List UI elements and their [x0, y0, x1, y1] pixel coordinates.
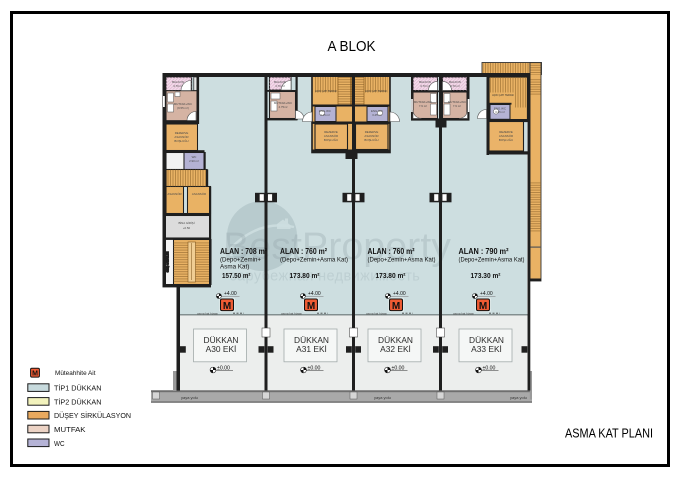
svg-text:AÇIK ÇATI TERASI: AÇIK ÇATI TERASI	[315, 90, 337, 93]
svg-text:7.9 m²: 7.9 m²	[419, 104, 427, 108]
svg-text:+4.00: +4.00	[393, 291, 406, 297]
svg-text:Asma Kat): Asma Kat)	[220, 264, 249, 271]
svg-text:MUTFAK: MUTFAK	[54, 425, 86, 434]
svg-text:yaya yolu: yaya yolu	[181, 395, 198, 400]
svg-text:ALAN : 708 m²: ALAN : 708 m²	[220, 246, 267, 256]
svg-text:M: M	[479, 301, 487, 312]
svg-text:+0.50: +0.50	[183, 226, 191, 230]
svg-text:4.70 m²: 4.70 m²	[420, 84, 430, 88]
svg-text:asma kat hizası: asma kat hizası	[281, 311, 302, 315]
svg-text:(Depo+Zemin+Asma Kat): (Depo+Zemin+Asma Kat)	[459, 257, 525, 264]
svg-text:yaya yolu: yaya yolu	[374, 395, 391, 400]
svg-text:A33 EKİ: A33 EKİ	[471, 344, 502, 354]
svg-text:BOŞLUĞU: BOŞLUĞU	[499, 137, 513, 142]
svg-text:2.90 m²: 2.90 m²	[189, 159, 199, 163]
svg-text:ASANSÖR: ASANSÖR	[167, 192, 181, 196]
svg-text:yaya yolu: yaya yolu	[510, 395, 527, 400]
svg-text:4.70 m²: 4.70 m²	[173, 84, 183, 88]
svg-text:asma kat hizası: asma kat hizası	[453, 311, 474, 315]
svg-text:A30 EKİ: A30 EKİ	[206, 344, 237, 354]
svg-text:AÇIK ÇATI TERASI: AÇIK ÇATI TERASI	[492, 94, 514, 97]
svg-text:±0.00: ±0.00	[483, 366, 496, 372]
svg-text:(Depo+Zemin+Asma Kat): (Depo+Zemin+Asma Kat)	[280, 257, 348, 264]
svg-text:(Depo+Zemin+: (Depo+Zemin+	[220, 257, 261, 264]
svg-text:7.9 m²: 7.9 m²	[453, 104, 461, 108]
svg-text:ALAN : 760 m²: ALAN : 760 m²	[368, 246, 415, 256]
svg-text:3.45 m²: 3.45 m²	[495, 110, 505, 114]
svg-text:(9.55 m²): (9.55 m²)	[177, 106, 189, 110]
svg-text:A32 EKİ: A32 EKİ	[380, 344, 411, 354]
svg-text:173.80 m²: 173.80 m²	[376, 271, 406, 280]
svg-text:173.30 m²: 173.30 m²	[471, 271, 501, 280]
svg-text:M: M	[307, 301, 315, 312]
svg-text:A31 EKİ: A31 EKİ	[296, 344, 327, 354]
svg-text:M: M	[223, 301, 231, 312]
svg-text:3.45 m²: 3.45 m²	[372, 113, 382, 117]
svg-text:TİP1 DÜKKAN: TİP1 DÜKKAN	[54, 384, 102, 393]
svg-text:+4.00: +4.00	[480, 291, 493, 297]
svg-text:4.75m²: 4.75m²	[279, 105, 288, 109]
svg-text:M: M	[392, 301, 400, 312]
svg-text:4.70 m²: 4.70 m²	[275, 84, 285, 88]
svg-text:M: M	[32, 370, 38, 377]
svg-text:ASANSÖR: ASANSÖR	[192, 192, 206, 196]
svg-text:173.80 m²: 173.80 m²	[290, 271, 320, 280]
svg-text:BİNA GİRİŞİ: BİNA GİRİŞİ	[178, 220, 194, 225]
svg-text:±0.00: ±0.00	[217, 366, 230, 372]
svg-text:ASMA KAT PLANI: ASMA KAT PLANI	[565, 427, 653, 441]
svg-text:+4.00: +4.00	[224, 291, 237, 297]
svg-text:BOŞLUĞU: BOŞLUĞU	[324, 137, 338, 142]
svg-text:±0.00: ±0.00	[392, 366, 405, 372]
svg-text:AÇIK ÇATI TERASI: AÇIK ÇATI TERASI	[365, 90, 387, 93]
svg-text:157.50 m²: 157.50 m²	[222, 271, 251, 280]
svg-text:GİRİŞ SAHANLIĞI: GİRİŞ SAHANLIĞI	[167, 251, 170, 272]
svg-text:TİP2 DÜKKAN: TİP2 DÜKKAN	[54, 397, 102, 406]
svg-text:(Depo+Zemin+Asma Kat): (Depo+Zemin+Asma Kat)	[368, 257, 436, 264]
svg-text:ALAN : 790 m²: ALAN : 790 m²	[459, 246, 509, 256]
svg-text:WC: WC	[54, 439, 65, 448]
svg-text:4.70 m²: 4.70 m²	[450, 84, 460, 88]
svg-text:Müteahhite Ait: Müteahhite Ait	[55, 370, 96, 377]
svg-text:±0.00: ±0.00	[308, 366, 321, 372]
svg-text:A BLOK: A BLOK	[328, 38, 376, 55]
svg-text:BOŞLUĞU: BOŞLUĞU	[174, 138, 188, 143]
svg-text:3.45 m²: 3.45 m²	[320, 113, 330, 117]
svg-text:DÜŞEY SİRKÜLASYON: DÜŞEY SİRKÜLASYON	[54, 411, 131, 420]
svg-text:ALAN : 760 m²: ALAN : 760 m²	[280, 246, 327, 256]
svg-text:asma kat hizası: asma kat hizası	[366, 311, 387, 315]
svg-text:asma kat hizası: asma kat hizası	[197, 311, 218, 315]
svg-text:+4.00: +4.00	[308, 291, 321, 297]
svg-text:BOŞLUĞU: BOŞLUĞU	[364, 137, 378, 142]
